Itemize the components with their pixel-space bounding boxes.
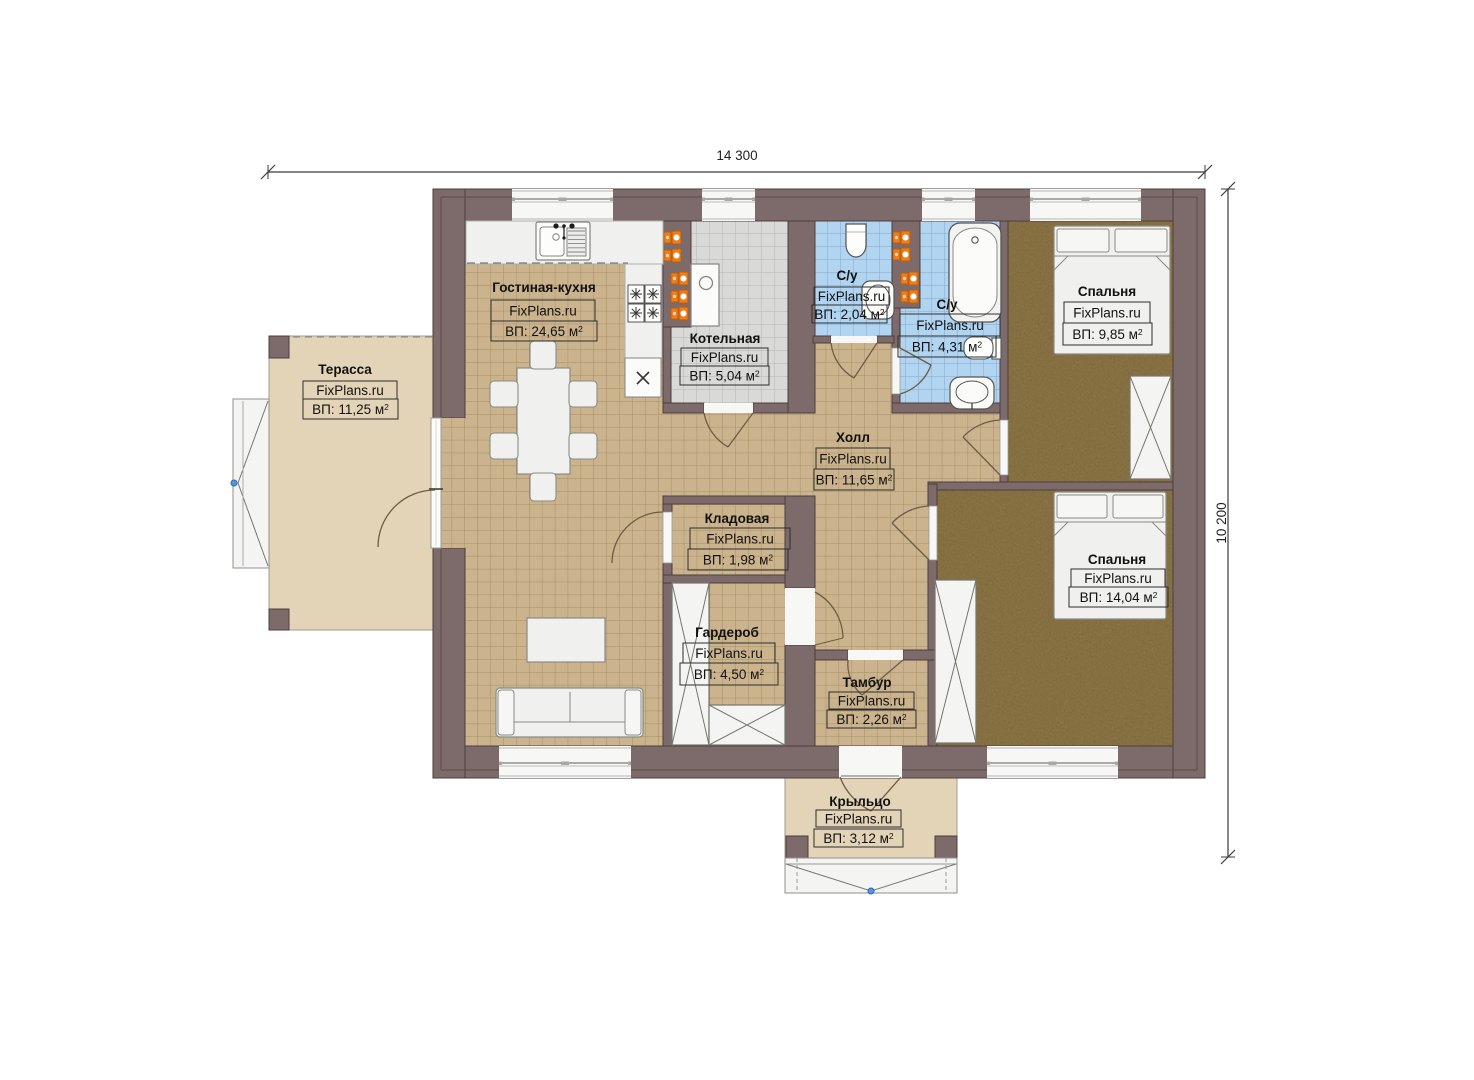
svg-text:ВП: 14,04 м2: ВП: 14,04 м2 xyxy=(1080,590,1158,605)
svg-text:FixPlans.ru: FixPlans.ru xyxy=(1073,306,1141,321)
svg-text:ВП: 9,85 м2: ВП: 9,85 м2 xyxy=(1072,327,1143,342)
svg-text:FixPlans.ru: FixPlans.ru xyxy=(916,318,984,333)
svg-text:ВП: 5,04 м2: ВП: 5,04 м2 xyxy=(689,369,760,384)
svg-text:Спальня: Спальня xyxy=(1088,552,1146,567)
svg-text:С/у: С/у xyxy=(936,297,958,312)
svg-text:ВП: 4,31 м2: ВП: 4,31 м2 xyxy=(912,340,983,355)
svg-text:ВП: 4,50 м2: ВП: 4,50 м2 xyxy=(694,667,765,682)
svg-text:Котельная: Котельная xyxy=(690,331,761,346)
svg-text:FixPlans.ru: FixPlans.ru xyxy=(706,532,774,547)
svg-text:FixPlans.ru: FixPlans.ru xyxy=(1084,571,1152,586)
svg-text:Крыльцо: Крыльцо xyxy=(829,794,890,809)
svg-text:ВП: 2,26 м2: ВП: 2,26 м2 xyxy=(836,712,907,727)
svg-text:10 200: 10 200 xyxy=(1214,502,1229,543)
svg-text:FixPlans.ru: FixPlans.ru xyxy=(509,304,577,319)
svg-text:ВП: 2,04 м2: ВП: 2,04 м2 xyxy=(814,307,885,322)
svg-text:Холл: Холл xyxy=(836,430,870,445)
svg-text:14 300: 14 300 xyxy=(716,148,757,163)
svg-text:FixPlans.ru: FixPlans.ru xyxy=(691,350,759,365)
svg-text:Терасса: Терасса xyxy=(318,362,372,377)
svg-text:FixPlans.ru: FixPlans.ru xyxy=(819,452,887,467)
svg-text:Гостиная-кухня: Гостиная-кухня xyxy=(492,280,595,295)
svg-text:Тамбур: Тамбур xyxy=(843,675,892,690)
svg-text:С/у: С/у xyxy=(836,268,858,283)
svg-text:FixPlans.ru: FixPlans.ru xyxy=(825,812,893,827)
svg-text:FixPlans.ru: FixPlans.ru xyxy=(316,383,384,398)
svg-text:FixPlans.ru: FixPlans.ru xyxy=(838,694,906,709)
svg-text:ВП: 11,65 м2: ВП: 11,65 м2 xyxy=(816,473,893,488)
svg-text:ВП: 3,12 м2: ВП: 3,12 м2 xyxy=(823,831,894,846)
svg-text:ВП: 24,65 м2: ВП: 24,65 м2 xyxy=(505,324,583,339)
svg-text:ВП: 1,98 м2: ВП: 1,98 м2 xyxy=(703,553,774,568)
svg-text:Кладовая: Кладовая xyxy=(705,511,770,526)
svg-text:FixPlans.ru: FixPlans.ru xyxy=(818,289,886,304)
svg-text:Гардероб: Гардероб xyxy=(695,625,759,640)
svg-text:Спальня: Спальня xyxy=(1078,284,1136,299)
svg-text:FixPlans.ru: FixPlans.ru xyxy=(695,646,763,661)
svg-text:ВП: 11,25 м2: ВП: 11,25 м2 xyxy=(312,402,389,417)
